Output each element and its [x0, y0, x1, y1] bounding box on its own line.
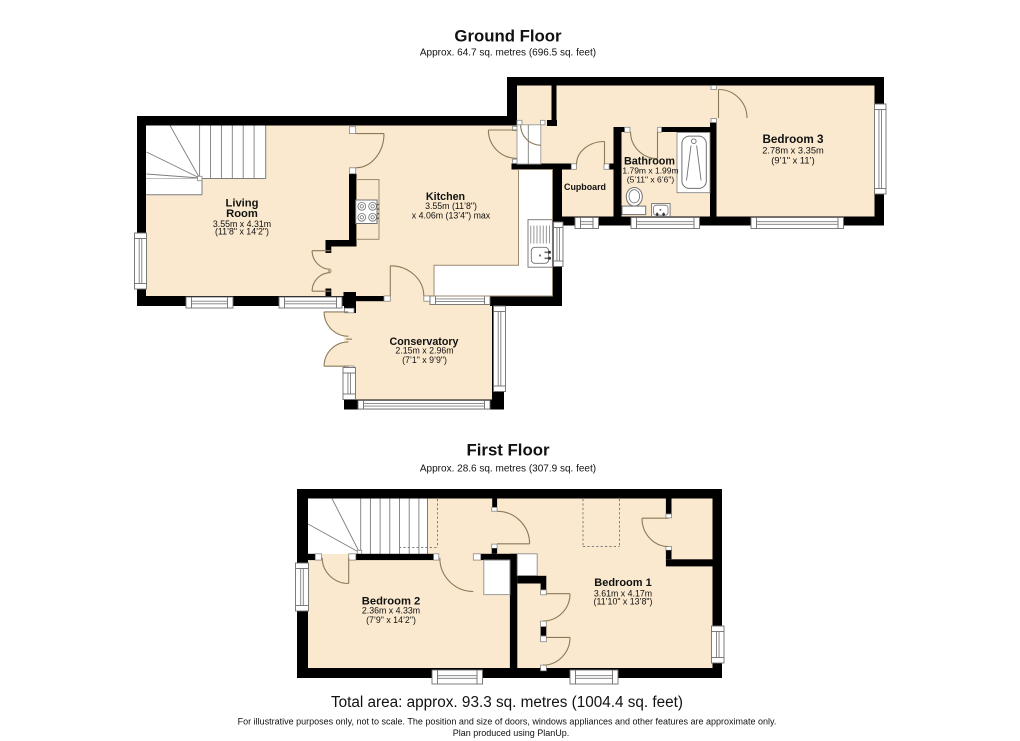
svg-text:Total area: approx. 93.3 sq. m: Total area: approx. 93.3 sq. metres (100… [331, 694, 683, 711]
svg-text:(11’8" x 14’2"): (11’8" x 14’2") [215, 226, 269, 236]
svg-text:Approx. 28.6 sq. metres (307.9: Approx. 28.6 sq. metres (307.9 sq. feet) [420, 463, 596, 474]
svg-text:(7’9" x 14’2"): (7’9" x 14’2") [366, 615, 416, 625]
svg-text:2.36m x 4.33m: 2.36m x 4.33m [362, 605, 420, 615]
svg-text:For illustrative purposes only: For illustrative purposes only, not to s… [238, 717, 777, 727]
svg-text:(5’11" x 6’6"): (5’11" x 6’6") [627, 175, 675, 185]
svg-text:x 4.06m (13’4") max: x 4.06m (13’4") max [412, 211, 491, 221]
svg-text:First Floor: First Floor [467, 441, 550, 460]
svg-text:Ground Floor: Ground Floor [454, 27, 562, 46]
svg-text:Plan produced using PlanUp.: Plan produced using PlanUp. [453, 728, 570, 738]
svg-text:(9’1" x 11’): (9’1" x 11’) [771, 155, 814, 165]
svg-text:(7’1" x 9’9"): (7’1" x 9’9") [402, 355, 447, 365]
svg-text:Cupboard: Cupboard [564, 182, 606, 192]
svg-text:Bedroom 3: Bedroom 3 [762, 133, 824, 146]
svg-text:Approx. 64.7 sq. metres (696.5: Approx. 64.7 sq. metres (696.5 sq. feet) [420, 48, 596, 59]
svg-text:2.78m x 3.35m: 2.78m x 3.35m [762, 146, 824, 156]
svg-text:(11’10" x 13’8"): (11’10" x 13’8") [594, 597, 653, 607]
